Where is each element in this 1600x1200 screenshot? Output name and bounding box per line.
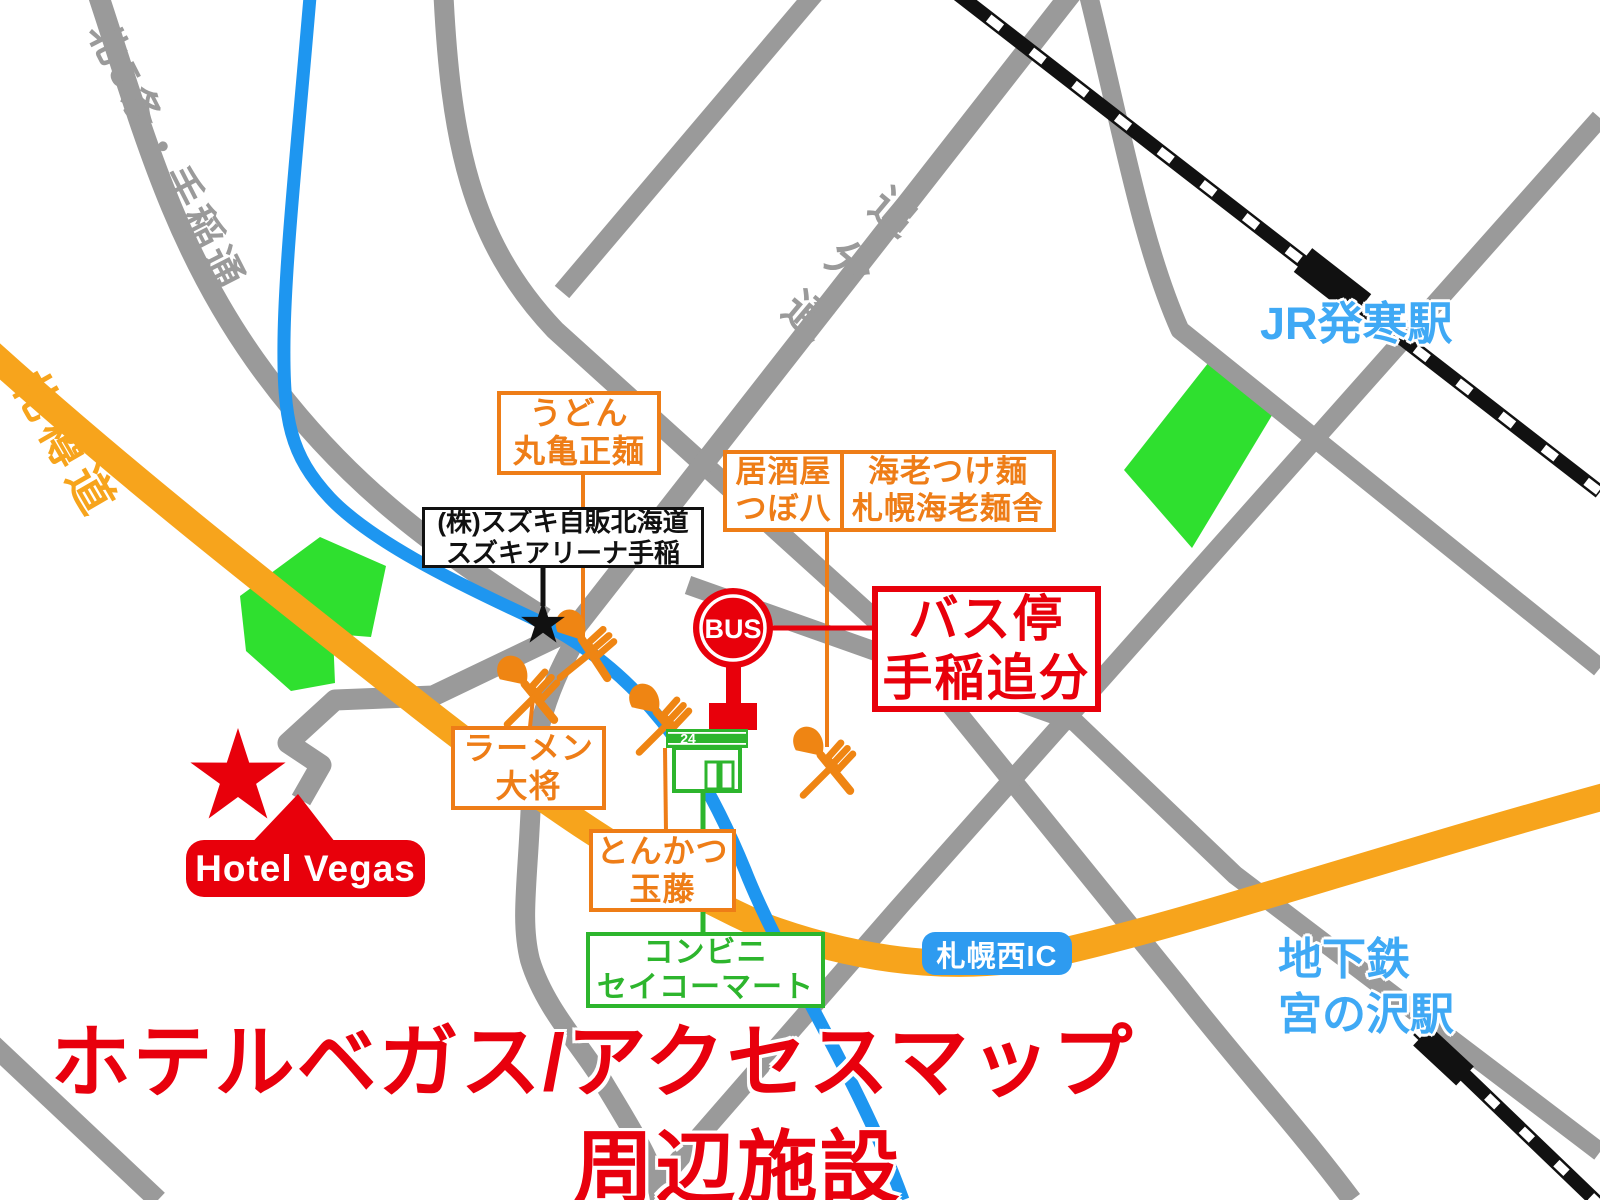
poi-izakaya-tsubohachi: 居酒屋 つぼ八 xyxy=(723,450,844,532)
subway-miyanosawa-station-label: 地下鉄 宮の沢駅 xyxy=(1278,932,1454,1042)
poi-bus-stop-teine-oiwake: バス停 手稲追分 xyxy=(872,586,1101,712)
poi-suzuki-line1: (株)スズキ自販北海道 xyxy=(425,507,701,538)
poi-conbini-seicomart: コンビニ セイコーマート xyxy=(586,932,825,1008)
poi-ramen-line2: 大将 xyxy=(455,768,602,806)
poi-suzuki-line2: スズキアリーナ手稲 xyxy=(425,538,701,569)
poi-ebi-tsukemen: 海老つけ麺 札幌海老麺舎 xyxy=(840,450,1056,532)
map-title-line1: ホテルベガス/アクセスマップ xyxy=(0,998,1185,1114)
bus-sign-text: BUS xyxy=(704,614,761,644)
subway-label-line1: 地下鉄 xyxy=(1278,932,1454,987)
poi-tonkatsu-tamafuji: とんかつ 玉藤 xyxy=(589,829,736,912)
poi-udon-marugame: うどん 丸亀正麺 xyxy=(497,391,661,475)
poi-ebi-line1: 海老つけ麺 xyxy=(844,454,1052,491)
jr-hassamu-station-label: JR発寒駅 xyxy=(1260,287,1453,352)
jr-railway-line xyxy=(946,0,1600,492)
convenience-store-icon: 24 xyxy=(666,729,748,791)
access-map: BUS 24 北5条・手稲通 札樽道 追分通 うどん 丸亀正麺 (株)スズキ自販… xyxy=(0,0,1600,1200)
hotel-star-icon xyxy=(190,728,285,819)
road-short-top xyxy=(562,0,822,292)
poi-busstop-line1: バス停 xyxy=(878,590,1095,649)
poi-udon-line1: うどん xyxy=(501,395,657,433)
subway-label-line2: 宮の沢駅 xyxy=(1278,987,1454,1042)
poi-ebi-line2: 札幌海老麺舎 xyxy=(844,491,1052,528)
poi-suzuki-arena: (株)スズキ自販北海道 スズキアリーナ手稲 xyxy=(422,507,704,568)
poi-tonkatsu-line1: とんかつ xyxy=(593,833,732,871)
poi-izakaya-line2: つぼ八 xyxy=(727,491,840,528)
poi-ramen-taisho: ラーメン 大将 xyxy=(451,726,606,810)
sapporo-nishi-ic-badge: 札幌西IC xyxy=(922,932,1072,975)
poi-conbini-line1: コンビニ xyxy=(590,935,821,970)
bus-stop-icon: BUS xyxy=(693,588,773,730)
poi-udon-line2: 丸亀正麺 xyxy=(501,433,657,471)
hotel-vegas-badge: Hotel Vegas xyxy=(186,840,425,897)
poi-ramen-line1: ラーメン xyxy=(455,730,602,768)
poi-izakaya-line1: 居酒屋 xyxy=(727,454,840,491)
restaurant-icon-2 xyxy=(497,656,557,725)
store-24h-badge: 24 xyxy=(680,731,696,747)
restaurant-icon-4 xyxy=(793,727,853,796)
map-title-line2: 周辺施設 xyxy=(0,1104,1475,1200)
poi-busstop-line2: 手稲追分 xyxy=(878,649,1095,708)
poi-tonkatsu-line2: 玉藤 xyxy=(593,871,732,909)
